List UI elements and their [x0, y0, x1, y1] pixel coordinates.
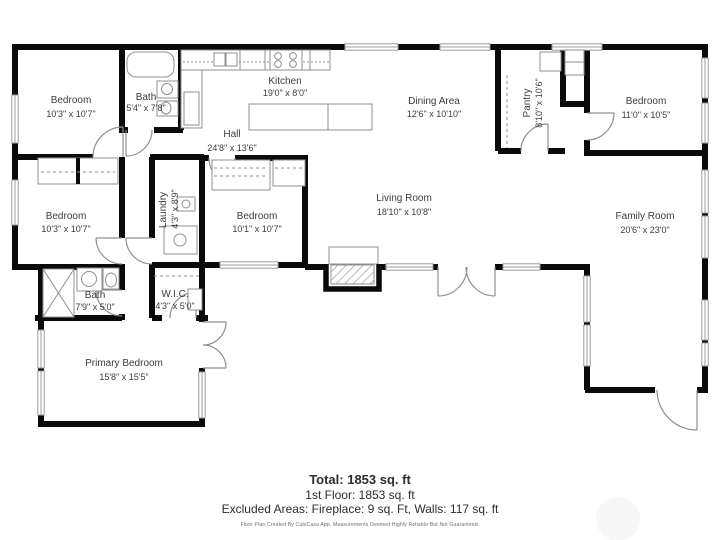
room-label-bedroom-mid-left: Bedroom: [46, 211, 87, 222]
shower-icon: [43, 269, 74, 317]
room-dims-laundry: 4'3" x 8'9": [170, 189, 180, 228]
room-dims-bath-lower: 7'9" x 5'0": [75, 302, 114, 312]
room-label-laundry: Laundry: [158, 192, 169, 228]
room-dims-dining: 12'6" x 10'10": [407, 109, 461, 119]
room-dims-kitchen: 19'0" x 8'0": [263, 88, 307, 98]
room-dims-bedroom-mid: 10'1" x 10'7": [232, 224, 281, 234]
bedroom-mid-closets: [212, 160, 305, 190]
kitchen-sink-icon: [214, 53, 237, 66]
washer-icon: [164, 226, 197, 254]
room-label-bath-top: Bath: [136, 92, 157, 103]
room-label-bedroom-top-right: Bedroom: [626, 96, 667, 107]
room-dims-living-room: 18'10" x 10'8": [377, 207, 431, 217]
room-dims-bath-top: 5'4" x 7'8": [126, 103, 165, 113]
fireplace-icon: [326, 247, 379, 289]
room-label-bath-lower: Bath: [85, 290, 106, 301]
stove-icon: [270, 50, 302, 70]
room-dims-family-room: 20'6" x 23'0": [620, 225, 669, 235]
room-dims-hall: 24'8" x 13'6": [207, 143, 256, 153]
room-label-dining: Dining Area: [408, 96, 460, 107]
watermark-logo: [596, 497, 640, 540]
room-label-bedroom-mid: Bedroom: [237, 211, 278, 222]
room-dims-bedroom-top-right: 11'0" x 10'5": [622, 110, 671, 120]
room-dims-bedroom-mid-left: 10'3" x 10'7": [41, 224, 90, 234]
room-label-family-room: Family Room: [616, 211, 675, 222]
room-label-kitchen: Kitchen: [268, 76, 301, 87]
total-area-text: Total: 1853 sq. ft: [0, 472, 720, 488]
floor-plan-page: Bedroom 10'3" x 10'7" Bath 5'4" x 7'8" K…: [0, 0, 720, 540]
room-label-bedroom-top-left: Bedroom: [51, 95, 92, 106]
room-label-living-room: Living Room: [376, 193, 432, 204]
pantry-shelving: [507, 52, 561, 148]
bedroom-mid-left-closet: [38, 158, 118, 184]
room-dims-bedroom-top-left: 10'3" x 10'7": [46, 109, 95, 119]
room-label-hall: Hall: [223, 129, 240, 140]
room-label-primary-bedroom: Primary Bedroom: [85, 358, 163, 369]
room-label-wic: W.I.C.: [161, 289, 188, 300]
kitchen-island: [249, 104, 372, 130]
bath-top-sink-icon: [157, 81, 178, 98]
room-dims-wic: 4'3" x 5'0": [155, 301, 194, 311]
room-dims-primary-bedroom: 15'8" x 15'5": [99, 372, 148, 382]
door-swings: [93, 113, 697, 430]
bedroom-top-right-closet: [565, 50, 584, 75]
bath-lower-sink-icon: [77, 268, 102, 291]
floor-plan-canvas: Bedroom 10'3" x 10'7" Bath 5'4" x 7'8" K…: [0, 0, 720, 460]
room-label-pantry: Pantry: [522, 89, 533, 118]
room-dims-pantry: 8'10" x 10'6": [534, 78, 544, 127]
bath-lower-toilet-icon: [103, 268, 119, 289]
bathtub-icon: [127, 52, 174, 77]
